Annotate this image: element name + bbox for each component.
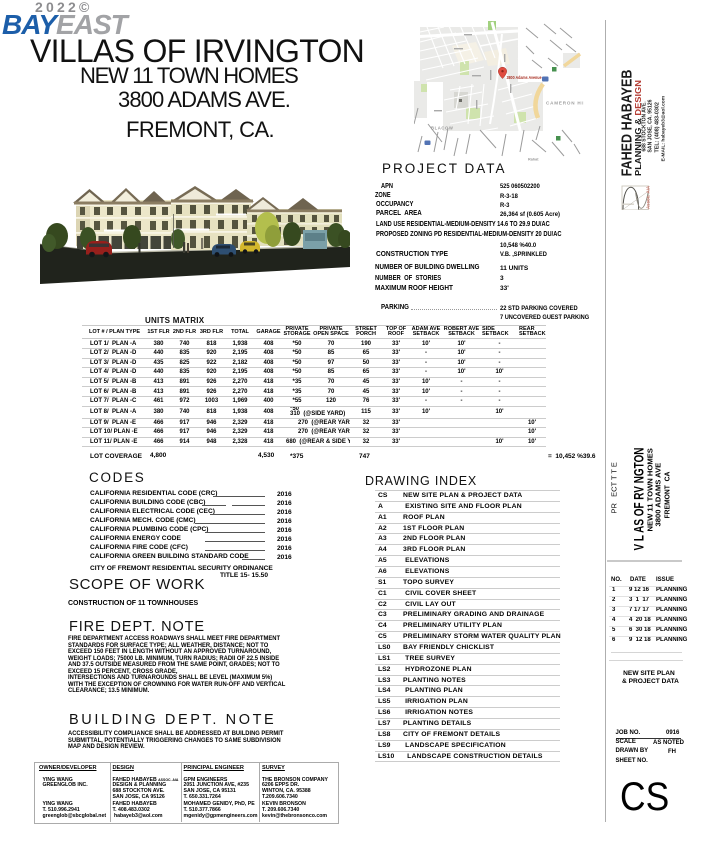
svg-text:Assoc. AIA: Assoc. AIA — [646, 185, 651, 209]
svg-text:3800 Adams Avenue: 3800 Adams Avenue — [507, 75, 542, 80]
svg-text:Rahat: Rahat — [528, 158, 539, 162]
svg-text:CAMERON HILL: CAMERON HILL — [546, 101, 584, 106]
svg-text:BLACOW: BLACOW — [431, 126, 453, 131]
